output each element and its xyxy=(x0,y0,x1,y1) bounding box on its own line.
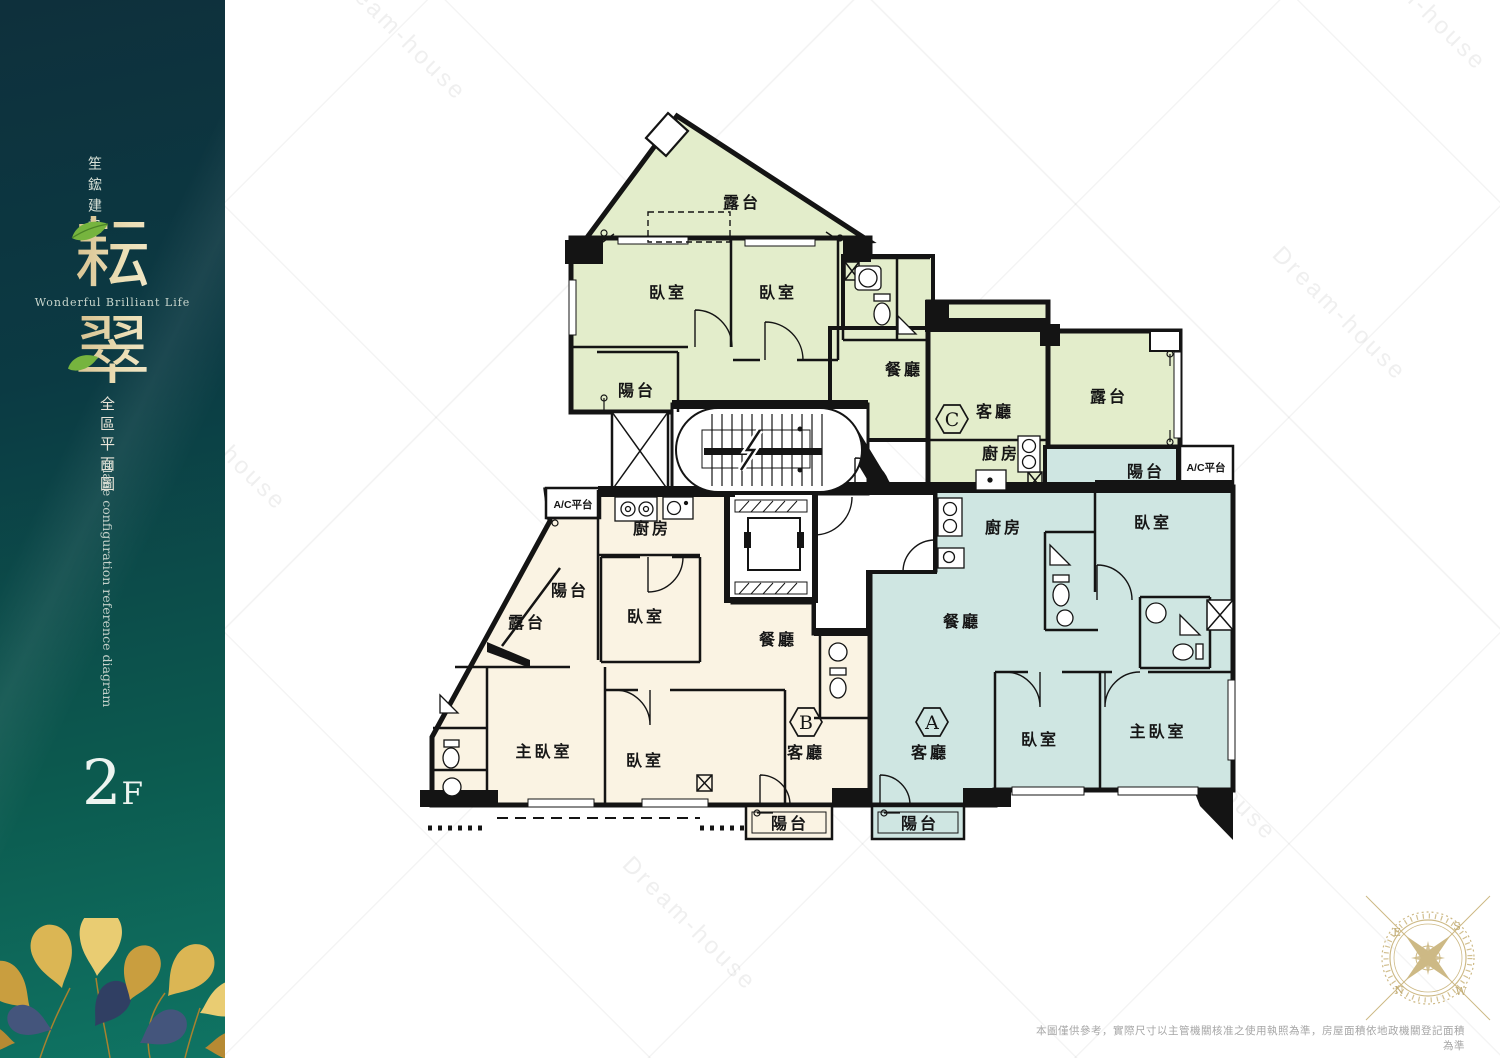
floorplan-page: { "sidebar": { "company": "笙鋐建設", "title… xyxy=(0,0,1500,1058)
compass-rose: E S N W xyxy=(1366,896,1490,1020)
room-label-terrace-b: 露台 xyxy=(508,613,546,632)
room-label-terrace-c2: 露台 xyxy=(1090,387,1128,406)
leaf-icon xyxy=(66,352,100,372)
room-label-dining-b: 餐廳 xyxy=(758,630,797,649)
floor-number: 2 xyxy=(82,746,121,819)
room-label-kitchen-b: 廚房 xyxy=(633,519,671,538)
floorplan-drawing: 露台 臥室 臥室 陽台 餐廳 客廳 廚房 露台 C 陽台 A/C平台 廚房 臥室… xyxy=(0,0,1500,1058)
room-label-balcony-a-top: 陽台 xyxy=(1127,462,1165,481)
ginkgo-artwork xyxy=(0,918,225,1058)
unit-c-badge-letter: C xyxy=(945,409,960,431)
disclaimer-text: 本圖僅供參考，實際尺寸以主管機關核准之使用執照為準，房屋面積依地政機關登記面積為… xyxy=(1030,1023,1465,1053)
subtitle-en: Plane configuration reference diagram xyxy=(100,461,115,711)
compass-s: S xyxy=(1453,920,1461,933)
room-label-bedroom-c1: 臥室 xyxy=(649,283,687,302)
room-label-kitchen-a: 廚房 xyxy=(985,518,1023,537)
project-title-char1: 耘 xyxy=(0,216,225,292)
leaf-icon xyxy=(70,218,110,242)
room-label-ac-b: A/C平台 xyxy=(553,498,592,511)
room-label-master-a: 主臥室 xyxy=(1129,722,1186,741)
staircase xyxy=(676,408,862,492)
compass-n: N xyxy=(1394,984,1404,997)
room-label-balcony-a-bottom: 陽台 xyxy=(901,814,939,833)
room-label-master-b: 主臥室 xyxy=(515,742,572,761)
room-label-kitchen-c: 廚房 xyxy=(982,444,1020,463)
room-label-terrace-c: 露台 xyxy=(723,193,761,212)
room-label-living-b: 客廳 xyxy=(787,743,825,762)
room-label-balcony-c: 陽台 xyxy=(618,381,656,400)
unit-b-badge-letter: B xyxy=(799,712,813,734)
room-label-bedroom-a2: 臥室 xyxy=(1021,730,1059,749)
room-label-bedroom-c2: 臥室 xyxy=(759,283,797,302)
compass-w: W xyxy=(1455,985,1467,998)
compass-e: E xyxy=(1393,926,1401,939)
room-label-dining-c: 餐廳 xyxy=(884,360,923,379)
sidebar: 笙鋐建設 耘 Wonderful Brilliant Life 翠 全區平面圖 … xyxy=(0,0,225,1058)
room-label-living-a: 客廳 xyxy=(911,743,949,762)
room-label-ac-a: A/C平台 xyxy=(1186,461,1225,474)
unit-a-badge-letter: A xyxy=(924,712,939,734)
floor-suffix: F xyxy=(121,776,143,812)
room-label-balcony-b: 陽台 xyxy=(551,581,589,600)
project-title-char2: 翠 xyxy=(0,313,225,389)
room-label-living-c: 客廳 xyxy=(976,402,1014,421)
room-label-dining-a: 餐廳 xyxy=(942,612,981,631)
room-label-bedroom-b2: 臥室 xyxy=(626,751,664,770)
room-label-bedroom-b1: 臥室 xyxy=(627,607,665,626)
room-label-bedroom-a1: 臥室 xyxy=(1134,513,1172,532)
room-label-balcony-b-bottom: 陽台 xyxy=(771,814,809,833)
floor-indicator: 2F xyxy=(0,746,225,819)
